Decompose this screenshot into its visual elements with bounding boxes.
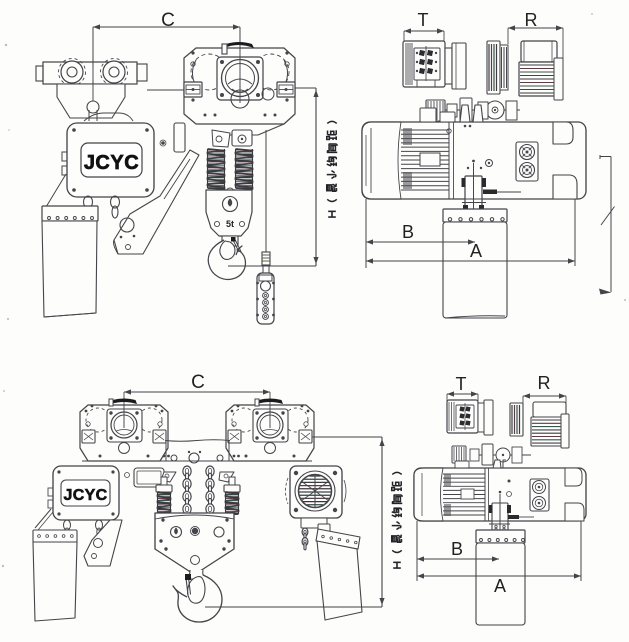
svg-text:R: R (525, 10, 538, 30)
svg-text:C: C (161, 10, 175, 31)
svg-text:T: T (456, 374, 467, 394)
svg-text:C: C (191, 372, 205, 393)
svg-text:T: T (418, 10, 429, 30)
svg-text:R: R (538, 373, 551, 393)
svg-text:B: B (451, 539, 463, 559)
svg-text:A: A (494, 576, 506, 596)
svg-text:B: B (402, 222, 414, 242)
svg-text:JCYC: JCYC (84, 152, 139, 174)
svg-text:JCYC: JCYC (64, 487, 108, 504)
svg-text:5t: 5t (226, 219, 234, 229)
svg-text:A: A (470, 241, 482, 261)
